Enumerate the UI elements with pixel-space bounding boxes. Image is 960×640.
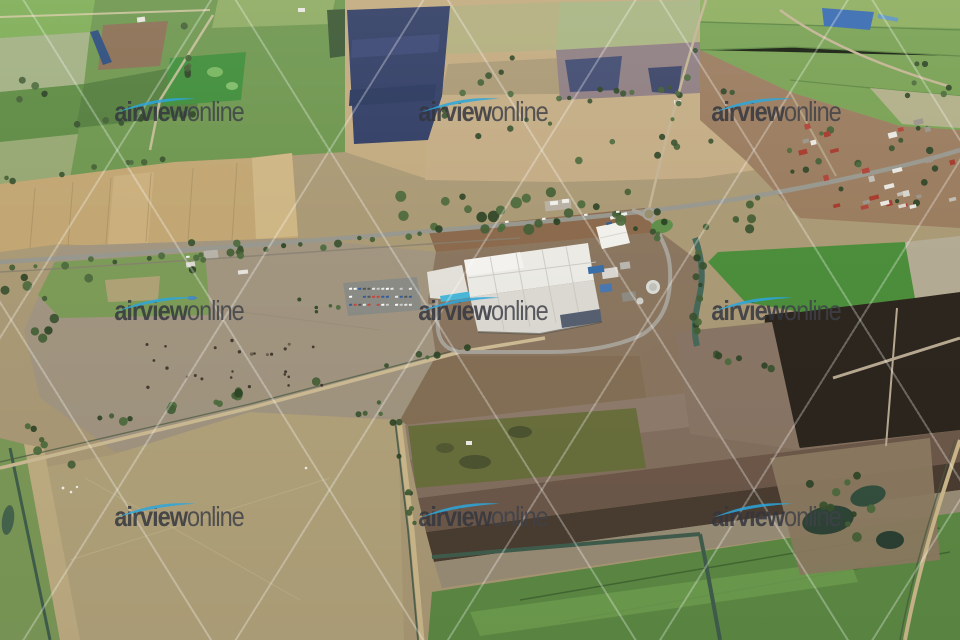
aerial-photo: airviewonline airviewonline airviewonlin… bbox=[0, 0, 960, 640]
aerial-photo-svg bbox=[0, 0, 960, 640]
roundabout bbox=[644, 209, 655, 220]
